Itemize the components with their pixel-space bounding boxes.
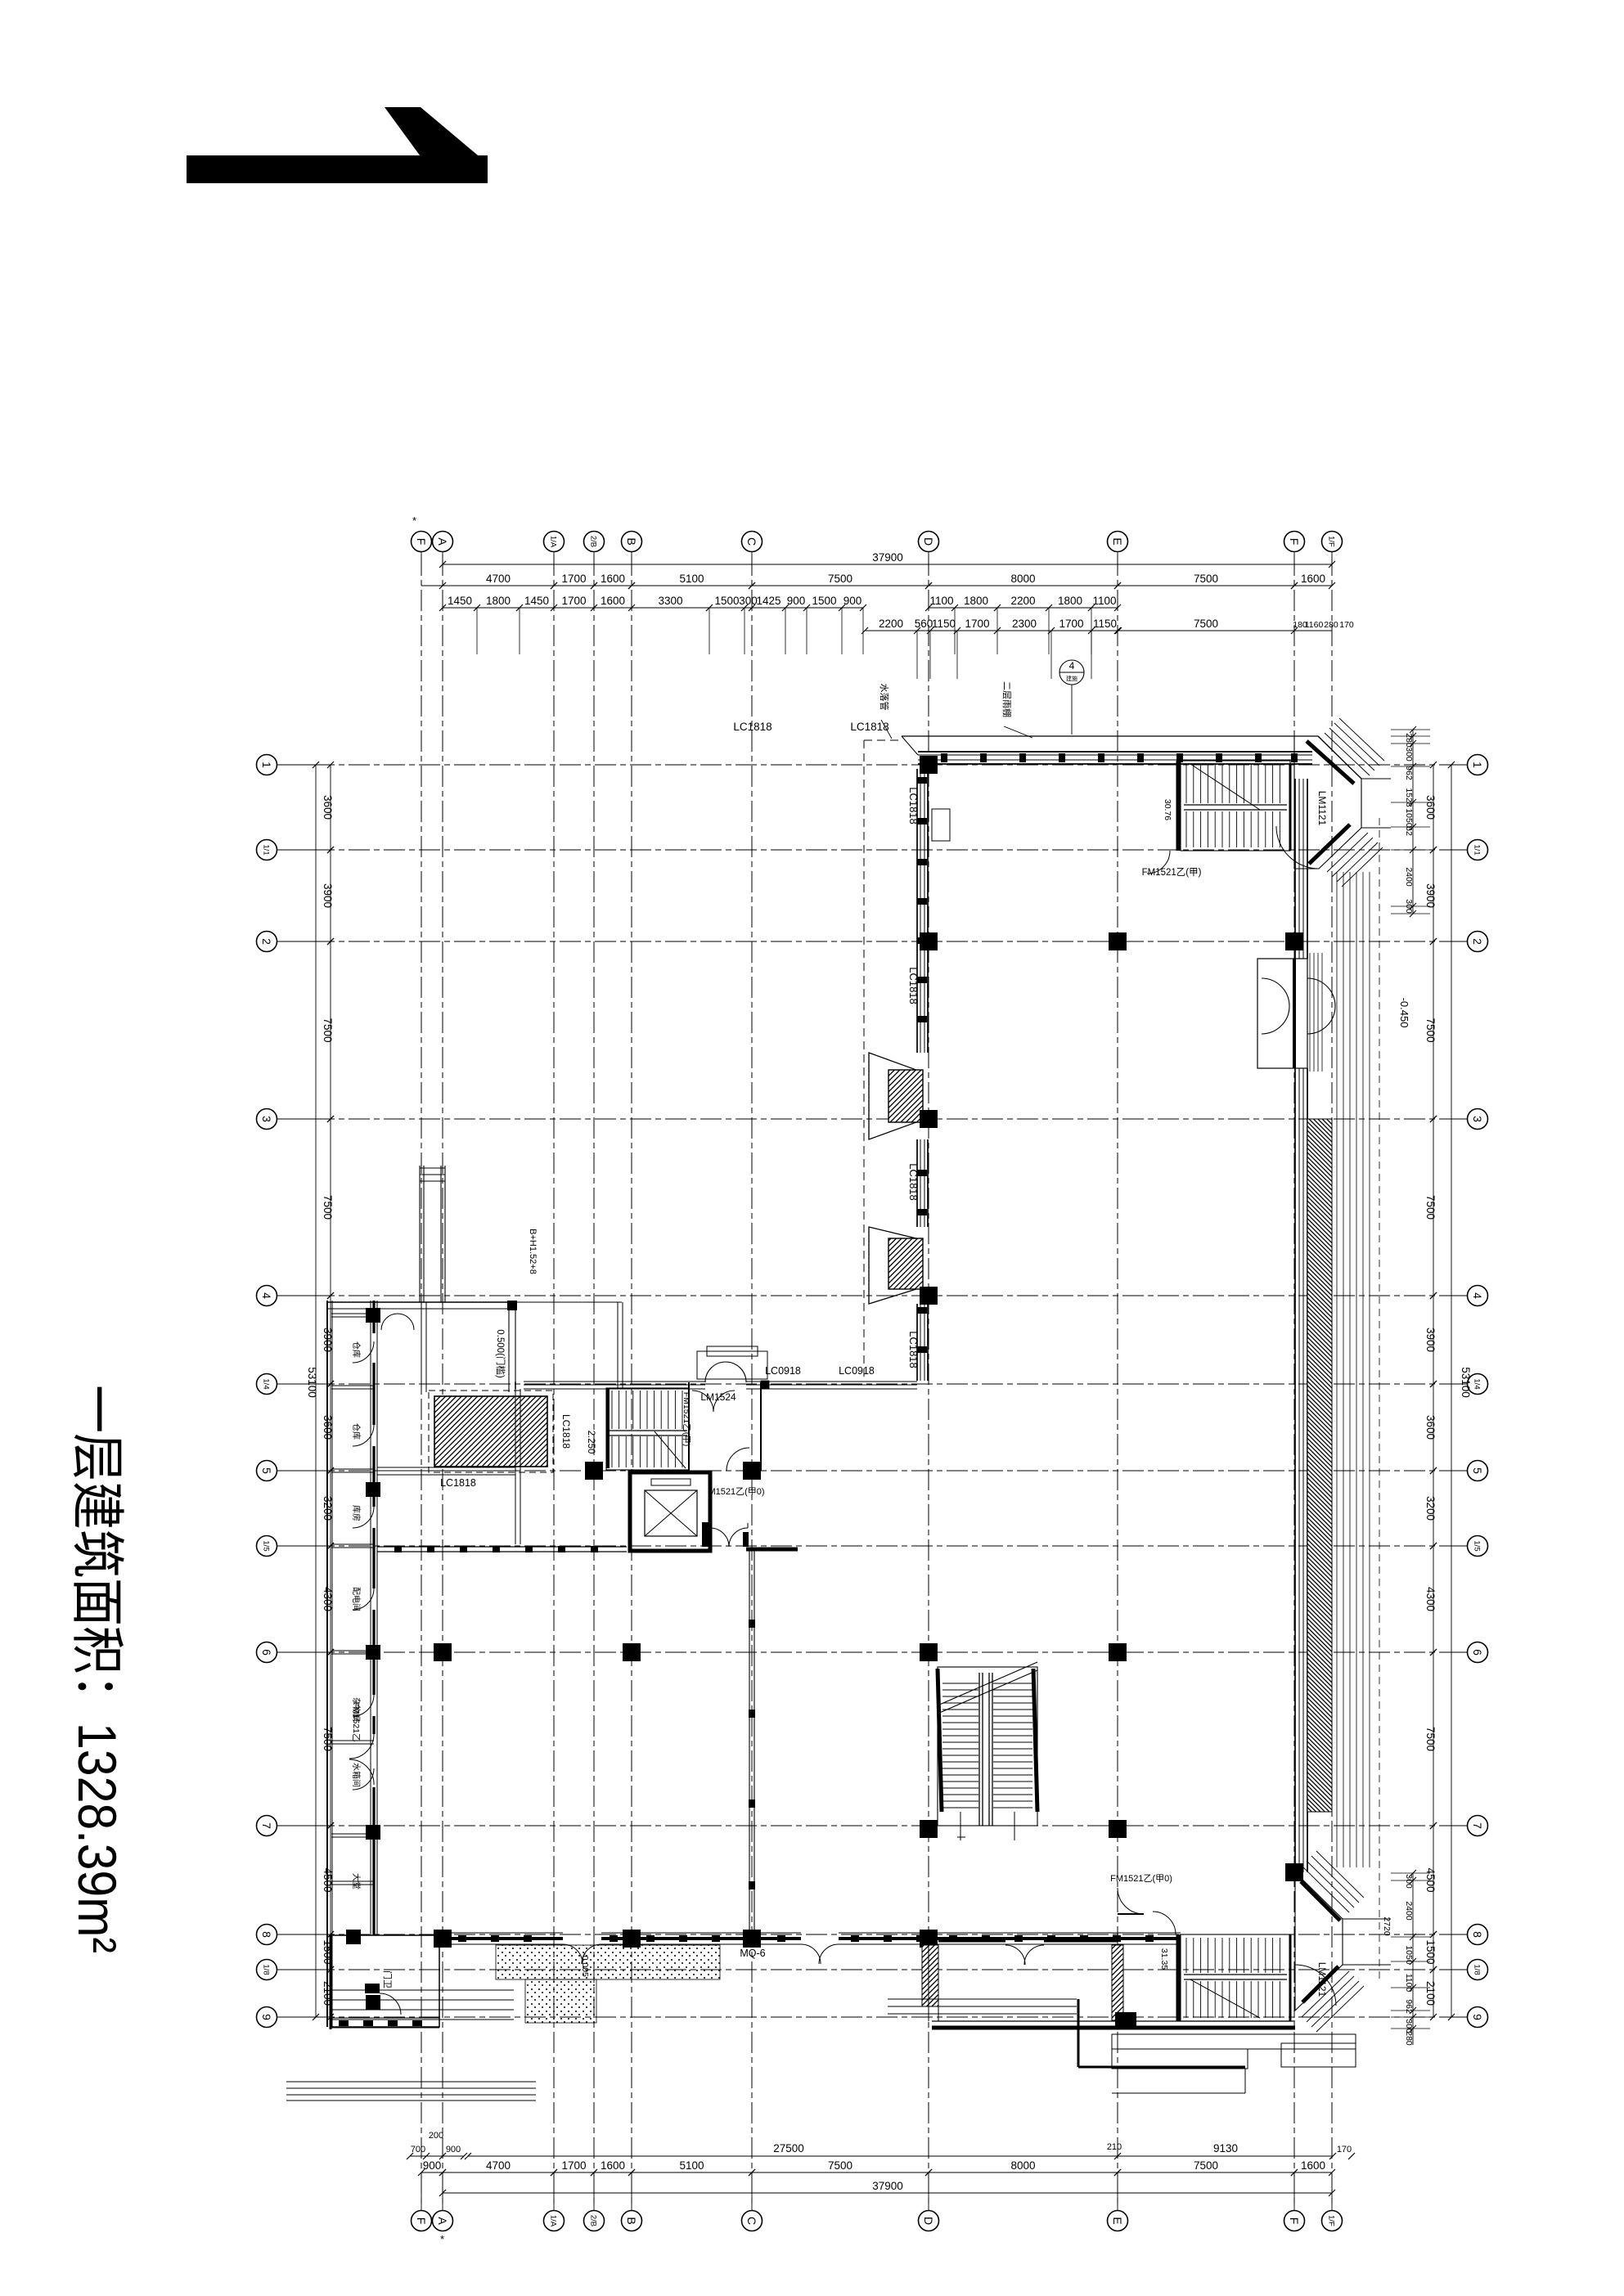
svg-text:1/F: 1/F: [1327, 2215, 1336, 2226]
svg-text:FM1521乙(甲): FM1521乙(甲): [682, 1392, 691, 1447]
svg-text:1450: 1450: [524, 595, 549, 607]
svg-text:F: F: [1288, 2217, 1301, 2225]
svg-text:3900: 3900: [1424, 883, 1437, 908]
svg-text:2.250: 2.250: [586, 1431, 596, 1454]
svg-text:7500: 7500: [322, 1195, 334, 1220]
svg-text:4700: 4700: [486, 2159, 511, 2172]
svg-text:300: 300: [1404, 747, 1414, 762]
svg-text:库房: 库房: [351, 1505, 362, 1521]
svg-text:1/5: 1/5: [262, 1540, 271, 1551]
svg-text:2200: 2200: [1010, 595, 1035, 607]
svg-text:170: 170: [1337, 2145, 1352, 2154]
svg-text:1600: 1600: [1301, 573, 1325, 585]
svg-text:1600: 1600: [601, 595, 625, 607]
svg-text:4500: 4500: [1424, 1867, 1437, 1892]
svg-text:900: 900: [446, 2145, 461, 2154]
svg-text:1500: 1500: [812, 595, 836, 607]
svg-text:1700: 1700: [561, 573, 586, 585]
svg-text:8000: 8000: [1010, 2159, 1035, 2172]
svg-text:1/5: 1/5: [1473, 1540, 1482, 1551]
svg-text:200: 200: [429, 2131, 443, 2141]
svg-text:7: 7: [1471, 1822, 1484, 1829]
svg-text:1150: 1150: [932, 618, 956, 630]
svg-text:30.76: 30.76: [1163, 799, 1172, 820]
svg-text:8: 8: [260, 1931, 273, 1938]
svg-text:MQ-6: MQ-6: [740, 1948, 765, 1959]
svg-text:门卫: 门卫: [382, 1970, 394, 1988]
svg-text:4700: 4700: [486, 573, 511, 585]
svg-text:F: F: [415, 538, 428, 546]
svg-text:1700: 1700: [561, 595, 586, 607]
svg-text:5100: 5100: [679, 573, 704, 585]
svg-text:53100: 53100: [1460, 1367, 1472, 1398]
svg-text:1100: 1100: [1404, 1974, 1414, 1993]
svg-text:1/1: 1/1: [262, 844, 271, 855]
svg-text:1150: 1150: [1093, 618, 1117, 630]
svg-text:1600: 1600: [601, 573, 625, 585]
svg-text:1600: 1600: [601, 2159, 625, 2172]
svg-text:7500: 7500: [828, 2159, 852, 2172]
svg-text:1700: 1700: [1059, 618, 1083, 630]
svg-text:5100: 5100: [679, 2159, 704, 2172]
svg-text:962: 962: [1404, 766, 1414, 780]
svg-text:7500: 7500: [1424, 1727, 1437, 1751]
svg-text:4: 4: [1471, 1292, 1484, 1299]
svg-text:53100: 53100: [306, 1367, 318, 1398]
svg-text:1800: 1800: [964, 595, 988, 607]
svg-text:LC1818: LC1818: [907, 1331, 920, 1368]
svg-text:C: C: [745, 2217, 758, 2225]
svg-text:1800: 1800: [1058, 595, 1082, 607]
svg-text:5: 5: [260, 1467, 273, 1474]
svg-text:210: 210: [1107, 2142, 1122, 2152]
svg-text:2/B: 2/B: [589, 536, 598, 547]
svg-text:7500: 7500: [1194, 2159, 1218, 2172]
svg-text:900: 900: [843, 595, 862, 607]
svg-text:FM1521乙(甲0): FM1521乙(甲0): [1110, 1873, 1172, 1884]
svg-text:6: 6: [260, 1649, 273, 1656]
svg-text:仓库: 仓库: [351, 1341, 362, 1358]
svg-text:3900: 3900: [1424, 1328, 1437, 1352]
svg-text:37900: 37900: [872, 2180, 903, 2192]
svg-text:LC0918: LC0918: [839, 1365, 875, 1377]
svg-text:2200: 2200: [879, 618, 903, 630]
svg-text:LM1121: LM1121: [1316, 791, 1328, 826]
svg-text:LC1818: LC1818: [440, 1477, 476, 1489]
svg-text:B: B: [625, 2217, 638, 2224]
svg-text:配电间: 配电间: [351, 1587, 362, 1611]
svg-text:8000: 8000: [1010, 573, 1035, 585]
svg-text:水落管: 水落管: [879, 684, 890, 711]
svg-text:E: E: [1111, 2217, 1124, 2224]
svg-text:2: 2: [1471, 938, 1484, 945]
svg-text:3200: 3200: [1424, 1496, 1437, 1521]
svg-text:1/A: 1/A: [549, 2215, 558, 2227]
svg-text:LC1818: LC1818: [907, 1163, 920, 1201]
svg-text:7500: 7500: [828, 573, 852, 585]
svg-text:1100: 1100: [929, 595, 953, 607]
svg-text:1/8: 1/8: [262, 1964, 271, 1975]
svg-text:7500: 7500: [1194, 618, 1218, 630]
svg-text:二层雨棚: 二层雨棚: [1001, 681, 1013, 717]
svg-text:1800: 1800: [486, 595, 511, 607]
svg-text:37900: 37900: [872, 551, 903, 564]
svg-text:0.500(门槛): 0.500(门槛): [495, 1329, 506, 1378]
svg-text:1700: 1700: [561, 2159, 586, 2172]
svg-text:1160: 1160: [1305, 620, 1324, 630]
svg-text:FM1521乙(甲): FM1521乙(甲): [1142, 867, 1202, 878]
svg-text:9: 9: [1471, 2014, 1484, 2020]
svg-text:1050: 1050: [1404, 808, 1414, 828]
svg-text:900: 900: [787, 595, 806, 607]
svg-text:170: 170: [1339, 620, 1354, 630]
svg-text:1/4: 1/4: [1473, 1378, 1482, 1389]
svg-text:D: D: [922, 537, 935, 546]
svg-text:2400: 2400: [1404, 1901, 1414, 1921]
svg-text:7: 7: [260, 1822, 273, 1829]
svg-text:280: 280: [1404, 733, 1414, 748]
svg-text:2/B: 2/B: [589, 2215, 598, 2226]
svg-text:B: B: [625, 537, 638, 545]
svg-text:LC1818: LC1818: [733, 721, 772, 733]
svg-text:LC1818: LC1818: [907, 787, 920, 824]
svg-text:1600: 1600: [1301, 2159, 1325, 2172]
svg-text:一层建筑面积：1328.39m²: 一层建筑面积：1328.39m²: [67, 1385, 128, 1953]
svg-text:1100: 1100: [1092, 595, 1116, 607]
svg-text:*: *: [412, 514, 416, 527]
svg-text:1/F: 1/F: [1327, 536, 1336, 547]
svg-text:F: F: [415, 2217, 428, 2225]
svg-text:仓库: 仓库: [351, 1423, 362, 1440]
svg-text:2: 2: [260, 938, 273, 945]
svg-text:2720: 2720: [1382, 1916, 1392, 1936]
svg-text:-0.450: -0.450: [1398, 998, 1410, 1028]
svg-text:4300: 4300: [1424, 1587, 1437, 1611]
svg-text:900: 900: [423, 2159, 442, 2172]
svg-text:3: 3: [1471, 1116, 1484, 1122]
svg-text:1/8: 1/8: [1473, 1964, 1482, 1975]
svg-text:水箱间: 水箱间: [351, 1763, 362, 1787]
svg-text:1/A: 1/A: [549, 536, 558, 548]
svg-text:A: A: [436, 537, 449, 546]
svg-text:1/4: 1/4: [262, 1378, 271, 1389]
svg-text:3600: 3600: [322, 795, 334, 820]
svg-text:3300: 3300: [658, 595, 682, 607]
svg-text:27500: 27500: [773, 2142, 804, 2154]
svg-text:-0.005: -0.005: [580, 1952, 590, 1977]
svg-text:1500: 1500: [714, 595, 739, 607]
svg-text:1/1: 1/1: [1473, 844, 1482, 855]
svg-text:1500: 1500: [1424, 1939, 1437, 1964]
svg-text:大堂: 大堂: [351, 1873, 362, 1889]
svg-text:LC1818: LC1818: [907, 967, 920, 1004]
svg-text:280: 280: [1324, 620, 1338, 630]
svg-text:B+H1.52+8: B+H1.52+8: [528, 1229, 538, 1274]
svg-text:4: 4: [260, 1292, 273, 1299]
svg-text:280: 280: [1404, 2031, 1414, 2046]
svg-text:3600: 3600: [1424, 1415, 1437, 1440]
svg-text:M1521乙(甲0): M1521乙(甲0): [708, 1486, 764, 1497]
svg-text:2100: 2100: [1424, 1981, 1437, 2006]
svg-text:A: A: [436, 2217, 449, 2225]
svg-text:FM1521乙: FM1521乙: [351, 1701, 361, 1741]
svg-text:8: 8: [1471, 1931, 1484, 1938]
svg-text:1: 1: [260, 762, 273, 768]
svg-text:2400: 2400: [1404, 867, 1414, 887]
svg-text:3: 3: [260, 1116, 273, 1122]
svg-text:D: D: [922, 2217, 935, 2225]
svg-text:31.35: 31.35: [1159, 1948, 1169, 1970]
svg-text:LC0918: LC0918: [765, 1365, 801, 1377]
svg-text:560: 560: [915, 618, 933, 630]
svg-text:F: F: [1288, 538, 1301, 546]
svg-text:7500: 7500: [322, 1018, 334, 1042]
svg-text:LM1121: LM1121: [1316, 1962, 1328, 1997]
svg-text:3900: 3900: [322, 883, 334, 908]
svg-text:7500: 7500: [1194, 573, 1218, 585]
svg-text:E: E: [1111, 537, 1124, 545]
svg-text:1700: 1700: [965, 618, 989, 630]
svg-text:7500: 7500: [1424, 1018, 1437, 1042]
svg-text:LM1524: LM1524: [700, 1391, 736, 1403]
svg-text:5: 5: [1471, 1467, 1484, 1474]
svg-text:LC1818: LC1818: [560, 1414, 572, 1449]
svg-text:4: 4: [1069, 660, 1075, 672]
svg-text:1450: 1450: [448, 595, 472, 607]
svg-text:9130: 9130: [1213, 2142, 1238, 2154]
svg-text:6: 6: [1471, 1649, 1484, 1656]
svg-text:建施: 建施: [1066, 675, 1077, 682]
svg-text:1528: 1528: [1404, 788, 1414, 807]
svg-text:1425: 1425: [756, 595, 781, 607]
svg-text:9: 9: [260, 2014, 273, 2020]
svg-text:7500: 7500: [1424, 1195, 1437, 1220]
svg-text:2300: 2300: [1012, 618, 1037, 630]
svg-text:*: *: [440, 2233, 444, 2245]
svg-text:LC1818: LC1818: [850, 721, 888, 733]
svg-text:1: 1: [1471, 762, 1484, 768]
svg-text:3600: 3600: [1424, 795, 1437, 820]
svg-text:C: C: [745, 537, 758, 546]
